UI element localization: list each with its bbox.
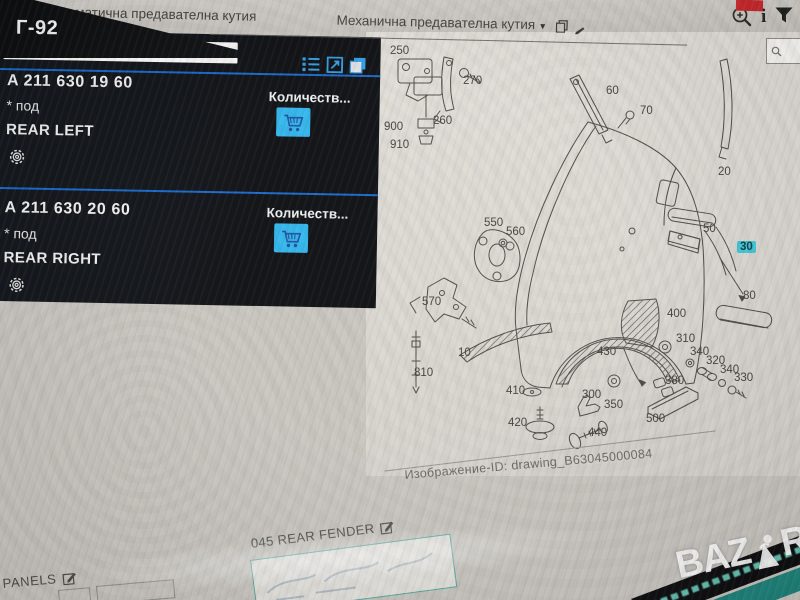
edit-pen-icon[interactable] [573,23,587,37]
diagram-part-label[interactable]: 310 [676,333,695,345]
add-to-cart-button[interactable] [274,223,309,253]
diagram-part-label[interactable]: 250 [390,45,409,57]
diagram-part-label[interactable]: 60 [606,85,619,97]
panels-title: PANELS [2,571,57,591]
list-view-icon[interactable] [302,56,320,73]
diagram-part-label[interactable]: 30 [737,241,756,253]
screen: 2502702609009106070205505605701081043040… [0,0,800,600]
part-note: * под [4,225,37,242]
thumbnail-placeholder[interactable] [96,579,175,600]
diagram-part-label[interactable]: 560 [506,226,525,238]
edit-icon[interactable] [62,570,77,585]
diagram-part-label[interactable]: 900 [384,121,403,133]
thumbnail-placeholder[interactable] [58,587,91,600]
red-indicator [736,0,763,11]
diagram-part-label[interactable]: 380 [665,375,684,387]
filter-icon[interactable] [774,6,794,26]
exploded-drawing [370,35,800,475]
diagram-part-label[interactable]: 570 [422,296,441,308]
corner-tag-label: Г-92 [16,17,59,41]
search-icon [771,46,782,57]
part-item[interactable]: A 211 630 19 60 * под REAR LEFT Количест… [0,68,380,194]
diagram-part-label[interactable]: 270 [463,75,482,87]
panels-title-row: PANELS [2,570,77,591]
diagram-part-label[interactable]: 300 [582,389,601,401]
diagram-part-label[interactable]: 260 [433,115,452,127]
diagram-part-label[interactable]: 440 [588,427,607,439]
options-gear-icon[interactable] [7,147,26,166]
diagram-part-label[interactable]: 910 [390,139,409,151]
options-gear-icon[interactable] [7,275,26,294]
duplicate-icon[interactable] [349,57,366,74]
copy-icon[interactable] [555,20,568,33]
tab-manual-label: Механична предавателна кутия [336,13,535,33]
diagram-part-label[interactable]: 810 [414,367,433,379]
search-input[interactable] [782,44,800,58]
quantity-label: Количеств... [266,205,348,222]
chevron-down-icon[interactable]: ▾ [540,21,545,32]
quantity-label: Количеств... [269,89,351,106]
part-name: REAR LEFT [6,121,94,140]
add-to-cart-button[interactable] [276,107,311,137]
diagram-part-label[interactable]: 20 [718,166,731,178]
part-number: A 211 630 20 60 [4,199,130,219]
diagram-part-label[interactable]: 550 [484,217,503,229]
diagram-part-label[interactable]: 70 [640,105,653,117]
diagram-part-label[interactable]: 350 [604,399,623,411]
diagram-part-label[interactable]: 80 [743,290,756,302]
parts-panel: A 211 630 19 60 * под REAR LEFT Количест… [0,30,381,308]
diagram-part-label[interactable]: 410 [506,385,525,397]
diagram-part-label[interactable]: 500 [646,413,665,425]
part-item[interactable]: A 211 630 20 60 * под REAR RIGHT Количес… [0,187,378,308]
diagram-part-label[interactable]: 400 [667,308,686,320]
fit-screen-icon[interactable] [326,56,343,73]
cart-icon [282,112,304,132]
diagram-part-label[interactable]: 430 [597,346,616,358]
part-number: A 211 630 19 60 [7,72,133,92]
part-note: * под [6,97,39,114]
cart-icon [280,228,302,248]
part-name: REAR RIGHT [3,249,101,268]
diagram-part-label[interactable]: 50 [703,223,716,235]
tab-manual-transmission[interactable]: Механична предавателна кутия▾ [336,13,545,33]
edit-icon[interactable] [380,519,396,535]
search-box [766,38,800,64]
diagram-part-label[interactable]: 420 [508,417,527,429]
diagram-part-label[interactable]: 330 [734,372,753,384]
diagram-area: 2502702609009106070205505605701081043040… [370,35,800,475]
diagram-part-label[interactable]: 10 [458,347,471,359]
